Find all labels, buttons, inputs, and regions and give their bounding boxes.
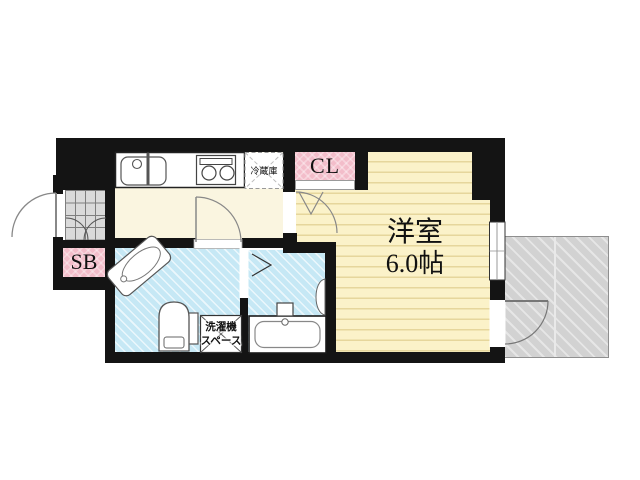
entrance-door-swing	[12, 193, 56, 237]
main-room-label: 洋室 6.0帖	[340, 213, 490, 283]
kitchen-sink	[121, 157, 166, 185]
bathtub-inner	[255, 322, 320, 348]
fixtures-layer	[0, 0, 640, 480]
laundry-line2: スペース	[201, 335, 242, 349]
bath-faucet	[277, 303, 293, 316]
bath-drain-icon	[282, 319, 288, 325]
bath-door-opening	[240, 248, 249, 298]
bath-folding-door-icon	[252, 254, 271, 276]
laundry-space-label: 洗濯機 スペース	[196, 319, 246, 351]
burner-icon	[202, 166, 216, 180]
floor-plan: CL SB 冷蔵庫 洋室 6.0帖 洗濯機 スペース	[0, 0, 640, 480]
balcony-door-swing	[505, 301, 548, 344]
burner-icon	[220, 166, 234, 180]
balcony-door-opening	[490, 300, 506, 347]
toilet-seat	[164, 337, 184, 348]
shoebox-label: SB	[63, 247, 105, 277]
vanity-sink	[105, 234, 173, 298]
closet-label: CL	[295, 151, 355, 180]
vanity-door-swing	[196, 197, 241, 242]
vanity-door-threshold	[194, 240, 242, 249]
stove-grill	[200, 159, 232, 165]
main-room-size: 6.0帖	[386, 249, 445, 279]
main-room-door-opening	[284, 192, 296, 233]
faucet-icon	[133, 160, 142, 169]
refrigerator-label: 冷蔵庫	[245, 152, 283, 189]
main-room-name: 洋室	[387, 217, 443, 249]
bath-counter	[316, 279, 325, 315]
laundry-line1: 洗濯機	[205, 321, 237, 335]
